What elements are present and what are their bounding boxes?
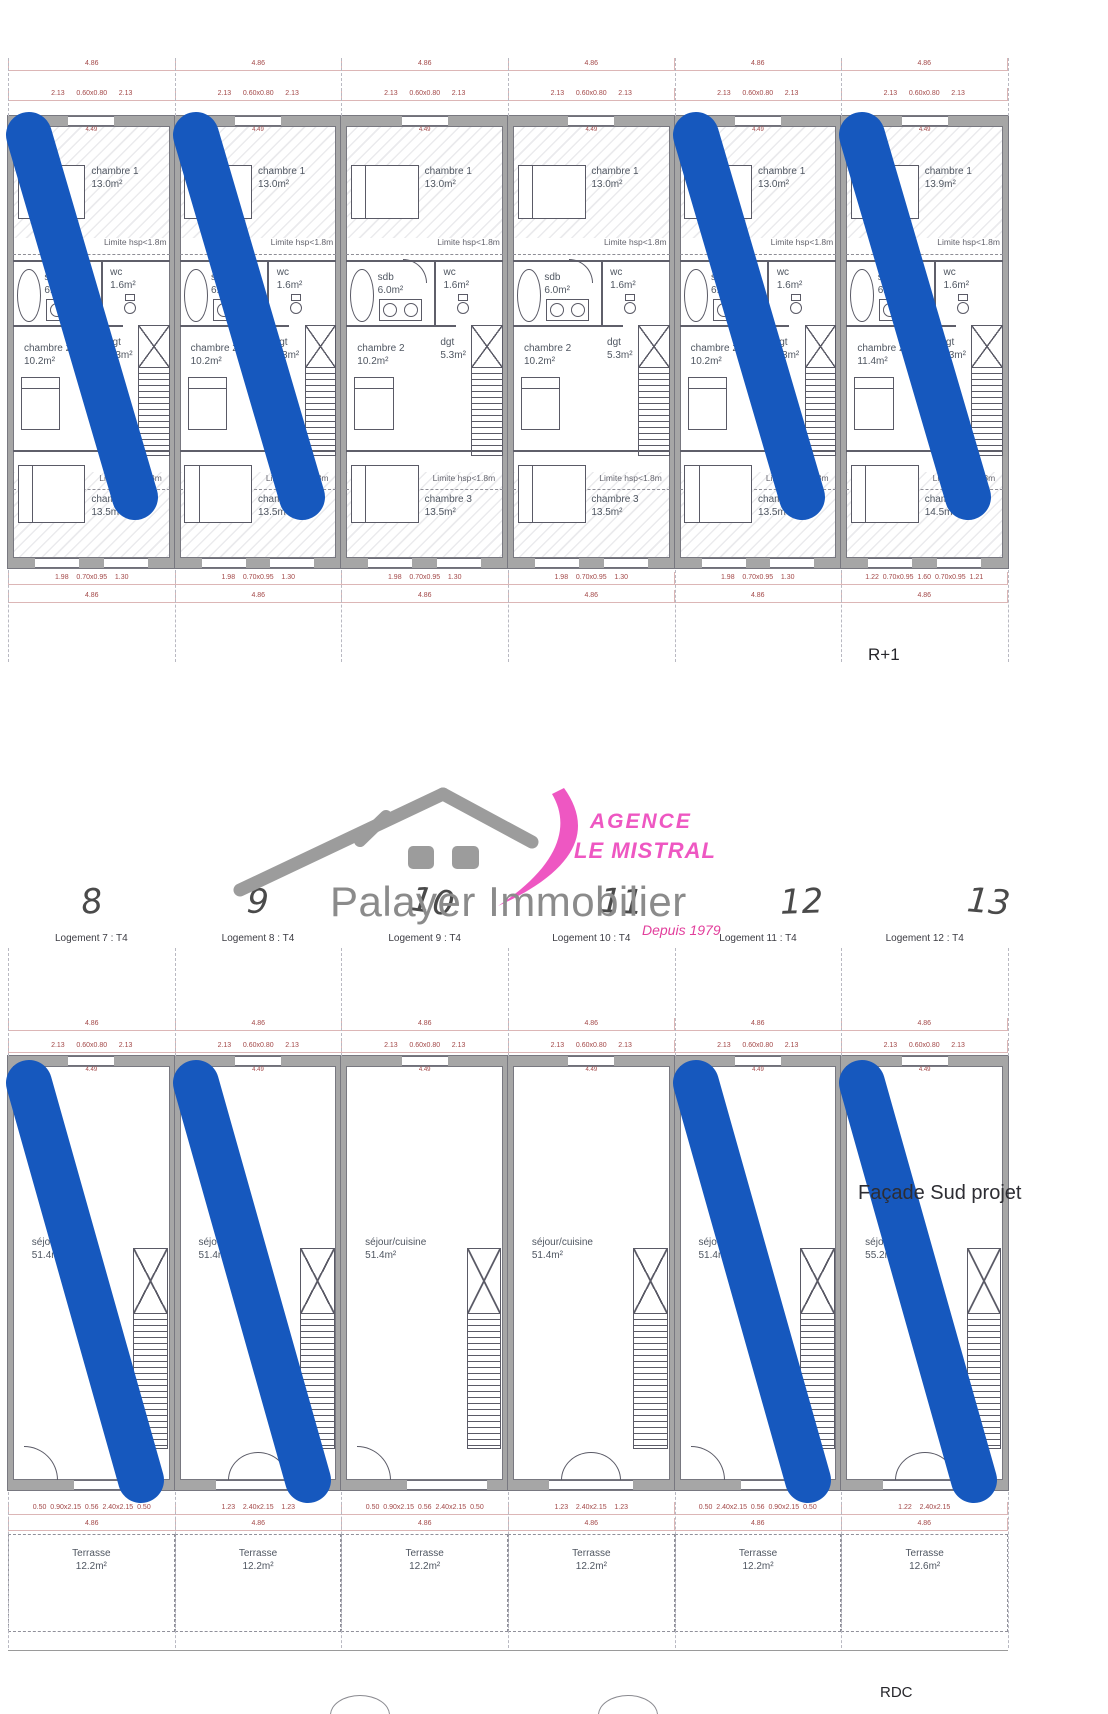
- room-label-wc: wc 1.6m²: [943, 266, 969, 292]
- limite-hsp-label: Limite hsp<1.8m: [271, 237, 334, 247]
- window-opening: [35, 558, 79, 568]
- dim-interior-width: 4.49: [680, 1067, 837, 1073]
- glazed-opening: [549, 1480, 633, 1490]
- dim-interior-width: 4.49: [180, 1067, 337, 1073]
- window-opening: [937, 558, 981, 568]
- interior-wall: [267, 260, 269, 325]
- staircase: [971, 325, 1003, 457]
- logement-label: Logement 7 : T4: [8, 933, 175, 944]
- room-label-chambre1: chambre 1 13.0m²: [758, 165, 805, 191]
- logement-labels-row: Logement 7 : T4 Logement 8 : T4 Logement…: [8, 933, 1008, 944]
- dim-cell: 4.86: [341, 590, 508, 603]
- dim-cell: 2.13 0.60x0.80 2.13: [341, 1040, 508, 1053]
- handwritten-number: 13: [965, 880, 1012, 924]
- dim-cell: 0.50 0.90x2.15 0.56 2.40x2.15 0.50: [341, 1502, 508, 1515]
- limite-hsp-line: [846, 254, 1003, 255]
- limite-hsp-label: Limite hsp<1.8m: [599, 473, 662, 483]
- window-opening: [902, 1056, 948, 1066]
- glazed-opening: [216, 1480, 300, 1490]
- bed-icon: [688, 377, 728, 431]
- staircase: [967, 1248, 1002, 1449]
- bed-icon: [851, 165, 919, 219]
- dim-interior-width: 4.49: [13, 1067, 170, 1073]
- door-arc: [69, 259, 93, 283]
- bed-icon: [188, 377, 228, 431]
- dim-interior-width: 4.49: [513, 127, 670, 133]
- window-opening: [604, 558, 648, 568]
- dim-cell: 1.22 0.70x0.95 1.60 0.70x0.95 1.21: [841, 572, 1009, 585]
- house-roof-icon: [240, 794, 532, 890]
- rdc-unit: 4.49 séjour/cuisine 51.4m²: [675, 1056, 842, 1490]
- limite-hsp-label: Limite hsp<1.8m: [937, 237, 1000, 247]
- logement-label: Logement 8 : T4: [175, 933, 342, 944]
- dim-cell: 4.86: [508, 590, 675, 603]
- room-label-chambre1: chambre 1 13.0m²: [258, 165, 305, 191]
- r1-unit: 4.49 chambre 1 13.9m² Limite hsp<1.8m sd…: [841, 116, 1008, 568]
- window-opening: [402, 116, 448, 126]
- window-opening: [437, 558, 481, 568]
- floor-plan-rdc: 4.49 séjour/cuisine 51.4m² 4.49 séjour/c…: [8, 1056, 1008, 1490]
- window-opening: [235, 116, 281, 126]
- window-opening: [770, 558, 814, 568]
- interior-wall: [346, 260, 503, 262]
- axis-guide-line: [675, 570, 676, 662]
- axis-guide-line: [508, 948, 509, 1056]
- room-label-sdb: sdb 6.0m²: [544, 271, 570, 297]
- floor-label-rdc: RDC: [880, 1684, 913, 1701]
- room-label-dgt: dgt 5.3m²: [940, 336, 966, 362]
- room-label-sejour-cuisine: séjour/cuisine 51.4m²: [532, 1236, 593, 1262]
- axis-guide-line: [175, 570, 176, 662]
- dim-cell: 1.23 2.40x2.15 1.23: [175, 1502, 342, 1515]
- toilet-icon: [956, 294, 970, 311]
- limite-hsp-label: Limite hsp<1.8m: [933, 473, 996, 483]
- bed-icon: [518, 165, 586, 219]
- dim-cell: 4.86: [841, 1518, 1009, 1531]
- terrasse-area: 12.2m²: [176, 1560, 341, 1573]
- interior-wall: [13, 260, 170, 262]
- limite-hsp-label: Limite hsp<1.8m: [99, 473, 162, 483]
- room-label-wc: wc 1.6m²: [277, 266, 303, 292]
- dim-cell: 4.86: [341, 58, 508, 71]
- axis-guide-line: [841, 1492, 842, 1648]
- rdc-unit: 4.49 séjour/cuisine 51.4m²: [8, 1056, 175, 1490]
- dim-cell: 4.86: [674, 58, 841, 71]
- dim-cell: 2.13 0.60x0.80 2.13: [841, 88, 1009, 101]
- room-label-chambre2: chambre 2 10.2m²: [691, 342, 738, 368]
- dim-cell: 1.98 0.70x0.95 1.30: [8, 572, 175, 585]
- room-label-chambre3: chambre 3 13.5m²: [758, 493, 805, 519]
- dim-cell: 4.86: [674, 590, 841, 603]
- dim-cell: 0.50 2.40x2.15 0.56 0.90x2.15 0.50: [674, 1502, 841, 1515]
- logement-label: Logement 12 : T4: [841, 933, 1008, 944]
- dim-interior-width: 4.49: [680, 127, 837, 133]
- interior-wall: [180, 325, 290, 327]
- limite-hsp-line: [513, 254, 670, 255]
- bathtub-icon: [350, 269, 374, 323]
- window-opening: [235, 1056, 281, 1066]
- interior-wall: [846, 260, 1003, 262]
- bed-icon: [18, 165, 86, 219]
- double-sink-icon: [213, 299, 256, 321]
- room-label-wc: wc 1.6m²: [110, 266, 136, 292]
- axis-guide-line: [8, 1492, 9, 1648]
- dim-cell: 4.86: [175, 1518, 342, 1531]
- staircase: [138, 325, 170, 457]
- axis-guide-line: [175, 58, 176, 116]
- room-label-chambre3: chambre 3 13.5m²: [258, 493, 305, 519]
- bed-icon: [354, 377, 394, 431]
- interior-wall: [601, 260, 603, 325]
- rdc-unit: 4.49 séjour/cuisine 51.4m²: [175, 1056, 342, 1490]
- interior-wall: [346, 450, 503, 452]
- door-arc: [736, 259, 760, 283]
- interior-wall: [767, 260, 769, 325]
- limite-hsp-line: [346, 254, 503, 255]
- dim-cell: 1.98 0.70x0.95 1.30: [508, 572, 675, 585]
- room-label-sdb: sdb 6.0m²: [211, 271, 237, 297]
- bed-icon: [18, 465, 86, 523]
- room-label-wc: wc 1.6m²: [610, 266, 636, 292]
- staircase: [300, 1248, 335, 1449]
- terrasse-area: 12.6m²: [842, 1560, 1007, 1573]
- room-label-wc: wc 1.6m²: [443, 266, 469, 292]
- dim-interior-width: 4.49: [513, 1067, 670, 1073]
- entry-door-arc: [691, 1446, 725, 1480]
- interior-wall: [680, 260, 837, 262]
- limite-hsp-line: [180, 254, 337, 255]
- interior-wall: [101, 260, 103, 325]
- window-opening: [702, 558, 746, 568]
- axis-guide-line: [341, 570, 342, 662]
- interior-wall: [513, 260, 670, 262]
- dim-cell: 4.86: [8, 1018, 175, 1031]
- bed-icon: [851, 465, 919, 523]
- glazed-opening: [74, 1480, 154, 1490]
- room-label-chambre3: chambre 3 13.5m²: [425, 493, 472, 519]
- limite-hsp-label: Limite hsp<1.8m: [433, 473, 496, 483]
- r1-unit: 4.49 chambre 1 13.0m² Limite hsp<1.8m sd…: [175, 116, 342, 568]
- axis-guide-line: [8, 58, 9, 116]
- bed-icon: [684, 165, 752, 219]
- facade-note: Façade Sud projet: [858, 1182, 1021, 1205]
- interior-wall: [346, 325, 456, 327]
- axis-guide-line: [841, 570, 842, 662]
- dim-cell: 2.13 0.60x0.80 2.13: [674, 1040, 841, 1053]
- axis-guide-line: [508, 58, 509, 116]
- dim-cell: 4.86: [674, 1518, 841, 1531]
- entry-door-arc: [357, 1446, 391, 1480]
- room-label-dgt: dgt 5.3m²: [107, 336, 133, 362]
- toilet-icon: [289, 294, 303, 311]
- dim-cell: 4.86: [341, 1018, 508, 1031]
- dim-interior-width: 4.49: [180, 127, 337, 133]
- room-label-chambre1: chambre 1 13.0m²: [91, 165, 138, 191]
- window-opening: [568, 1056, 614, 1066]
- terrasse: Terrasse 12.2m²: [508, 1534, 675, 1632]
- bathtub-icon: [17, 269, 41, 323]
- window-opening: [368, 558, 412, 568]
- dim-cell: 4.86: [8, 58, 175, 71]
- dim-cell: 0.50 0.90x2.15 0.56 2.40x2.15 0.50: [8, 1502, 175, 1515]
- interior-wall: [434, 260, 436, 325]
- bed-icon: [184, 165, 252, 219]
- r1-unit: 4.49 chambre 1 13.0m² Limite hsp<1.8m sd…: [8, 116, 175, 568]
- toilet-icon: [456, 294, 470, 311]
- dim-cell: 4.86: [8, 1518, 175, 1531]
- glazed-opening: [407, 1480, 487, 1490]
- dim-interior-width: 4.49: [13, 127, 170, 133]
- window-opening: [568, 116, 614, 126]
- blueprint-page: 4.864.864.864.864.864.86 2.13 0.60x0.80 …: [0, 0, 1108, 1714]
- rdc-unit: 4.49 séjour/cuisine 51.4m²: [508, 1056, 675, 1490]
- interior-wall: [680, 450, 837, 452]
- axis-guide-line: [675, 948, 676, 1056]
- axis-guide-line: [1008, 1492, 1009, 1648]
- glazed-opening: [883, 1480, 967, 1490]
- room-label-chambre2: chambre 2 11.4m²: [857, 342, 904, 368]
- dim-cell: 2.13 0.60x0.80 2.13: [508, 1040, 675, 1053]
- axis-guide-line: [341, 58, 342, 116]
- axis-guide-line: [1008, 570, 1009, 662]
- handwritten-number: 8: [78, 881, 104, 923]
- dim-cell: 2.13 0.60x0.80 2.13: [674, 88, 841, 101]
- room-label-dgt: dgt 5.3m²: [774, 336, 800, 362]
- company-name: Palayer Immobilier: [330, 878, 687, 926]
- bed-icon: [351, 465, 419, 523]
- dim-cell: 2.13 0.60x0.80 2.13: [841, 1040, 1009, 1053]
- interior-wall: [513, 450, 670, 452]
- room-label-sejour-cuisine: séjour/cuisine 51.4m²: [365, 1236, 426, 1262]
- axis-guide-line: [341, 1492, 342, 1648]
- terrasse-area: 12.2m²: [9, 1560, 174, 1573]
- room-label-wc: wc 1.6m²: [777, 266, 803, 292]
- room-label-chambre1: chambre 1 13.9m²: [925, 165, 972, 191]
- bed-icon: [854, 377, 894, 431]
- dim-cell: 4.86: [674, 1018, 841, 1031]
- staircase: [133, 1248, 168, 1449]
- door-arc: [903, 259, 927, 283]
- staircase: [638, 325, 670, 457]
- r1-unit: 4.49 chambre 1 13.0m² Limite hsp<1.8m sd…: [675, 116, 842, 568]
- rdc-unit: 4.49 séjour/cuisine 51.4m²: [341, 1056, 508, 1490]
- door-arc: [598, 1695, 658, 1714]
- dim-interior-width: 4.49: [346, 1067, 503, 1073]
- dim-cell: 2.13 0.60x0.80 2.13: [175, 88, 342, 101]
- door-arc: [330, 1695, 390, 1714]
- staircase: [800, 1248, 835, 1449]
- dim-interior-width: 4.49: [846, 127, 1003, 133]
- axis-guide-line: [841, 948, 842, 1056]
- axis-guide-line: [341, 948, 342, 1056]
- room-label-sdb: sdb 6.0m²: [44, 271, 70, 297]
- interior-wall: [13, 325, 123, 327]
- dim-cell: 4.86: [175, 590, 342, 603]
- dim-cell: 1.23 2.40x2.15 1.23: [508, 1502, 675, 1515]
- dim-cell: 4.86: [841, 590, 1009, 603]
- window-opening: [902, 116, 948, 126]
- floor-plan-r1: 4.49 chambre 1 13.0m² Limite hsp<1.8m sd…: [8, 116, 1008, 568]
- dim-cell: 4.86: [508, 1018, 675, 1031]
- dim-cell: 4.86: [508, 58, 675, 71]
- room-label-chambre2: chambre 2 10.2m²: [524, 342, 571, 368]
- window-opening: [868, 558, 912, 568]
- interior-wall: [513, 325, 623, 327]
- terrasse-label: Terrasse: [509, 1547, 674, 1560]
- dim-cell: 1.98 0.70x0.95 1.30: [175, 572, 342, 585]
- overall-dimension-line: [8, 1650, 1008, 1651]
- r1-unit: 4.49 chambre 1 13.0m² Limite hsp<1.8m sd…: [341, 116, 508, 568]
- logement-label: Logement 9 : T4: [341, 933, 508, 944]
- bed-icon: [518, 465, 586, 523]
- bed-icon: [21, 377, 61, 431]
- room-label-chambre1: chambre 1 13.0m²: [425, 165, 472, 191]
- terrasse: Terrasse 12.2m²: [8, 1534, 175, 1632]
- dim-cell: 4.86: [175, 58, 342, 71]
- agency-name-line2: LE MISTRAL: [574, 838, 716, 864]
- terrasse: Terrasse 12.2m²: [341, 1534, 508, 1632]
- dim-cell: 1.98 0.70x0.95 1.30: [341, 572, 508, 585]
- bed-icon: [684, 465, 752, 523]
- window-opening: [735, 116, 781, 126]
- axis-guide-line: [8, 570, 9, 662]
- dim-cell: 4.86: [841, 1018, 1009, 1031]
- terrasse-area: 12.2m²: [342, 1560, 507, 1573]
- staircase: [305, 325, 337, 457]
- terrasse-label: Terrasse: [342, 1547, 507, 1560]
- interior-wall: [846, 450, 1003, 452]
- company-tagline: Depuis 1979: [642, 922, 721, 938]
- interior-wall: [934, 260, 936, 325]
- room-label-chambre3: chambre 3 13.5m²: [591, 493, 638, 519]
- dim-cell: 2.13 0.60x0.80 2.13: [341, 88, 508, 101]
- room-label-dgt: dgt 5.3m²: [274, 336, 300, 362]
- bathtub-icon: [184, 269, 208, 323]
- bathtub-icon: [684, 269, 708, 323]
- interior-wall: [846, 325, 956, 327]
- room-label-chambre3: chambre 3 13.5m²: [91, 493, 138, 519]
- axis-guide-line: [1008, 58, 1009, 116]
- double-sink-icon: [879, 299, 922, 321]
- door-arc: [569, 259, 593, 283]
- room-label-chambre3: chambre 3 14.5m²: [925, 493, 972, 519]
- terrasse: Terrasse 12.2m²: [675, 1534, 842, 1632]
- window-opening: [270, 558, 314, 568]
- terrasse: Terrasse 12.6m²: [841, 1534, 1008, 1632]
- terrasse-label: Terrasse: [842, 1547, 1007, 1560]
- room-label-chambre2: chambre 2 10.2m²: [191, 342, 238, 368]
- double-sink-icon: [379, 299, 422, 321]
- door-arc: [403, 259, 427, 283]
- limite-hsp-label: Limite hsp<1.8m: [604, 237, 667, 247]
- dim-cell: 4.86: [8, 590, 175, 603]
- window-opening: [402, 1056, 448, 1066]
- room-label-chambre2: chambre 2 10.2m²: [357, 342, 404, 368]
- room-label-sdb: sdb 6.0m²: [711, 271, 737, 297]
- bathtub-icon: [517, 269, 541, 323]
- limite-hsp-label: Limite hsp<1.8m: [266, 473, 329, 483]
- toilet-icon: [789, 294, 803, 311]
- terrasse-area: 12.2m²: [676, 1560, 841, 1573]
- axis-guide-line: [675, 1492, 676, 1648]
- floor-label-r1: R+1: [868, 645, 900, 665]
- double-sink-icon: [46, 299, 89, 321]
- room-label-chambre1: chambre 1 13.0m²: [591, 165, 638, 191]
- window-opening: [104, 558, 148, 568]
- room-label-sejour-cuisine: séjour/cuisine 51.4m²: [698, 1236, 759, 1262]
- toilet-icon: [623, 294, 637, 311]
- limite-hsp-line: [680, 254, 837, 255]
- room-label-sejour-cuisine: séjour/cuisine 51.4m²: [198, 1236, 259, 1262]
- r1-unit: 4.49 chambre 1 13.0m² Limite hsp<1.8m sd…: [508, 116, 675, 568]
- bed-icon: [184, 465, 252, 523]
- entry-door-arc: [24, 1446, 58, 1480]
- french-doors-arc: [895, 1452, 955, 1480]
- room-label-sdb: sdb 6.0m²: [378, 271, 404, 297]
- interior-wall: [13, 450, 170, 452]
- handwritten-number: 12: [780, 881, 825, 922]
- window-opening: [202, 558, 246, 568]
- room-label-sejour-cuisine: séjour/cuisine 55.2m²: [865, 1236, 926, 1262]
- terrasse-label: Terrasse: [176, 1547, 341, 1560]
- staircase: [805, 325, 837, 457]
- dim-interior-width: 4.49: [846, 1067, 1003, 1073]
- window-opening: [735, 1056, 781, 1066]
- bed-icon: [351, 165, 419, 219]
- dim-cell: 4.86: [841, 58, 1009, 71]
- axis-guide-line: [675, 58, 676, 116]
- axis-guide-line: [1008, 948, 1009, 1056]
- dim-cell: 4.86: [341, 1518, 508, 1531]
- room-label-chambre2: chambre 2 10.2m²: [24, 342, 71, 368]
- axis-guide-line: [508, 570, 509, 662]
- dim-cell: 1.98 0.70x0.95 1.30: [674, 572, 841, 585]
- double-sink-icon: [713, 299, 756, 321]
- room-label-dgt: dgt 5.3m²: [607, 336, 633, 362]
- axis-guide-line: [175, 1492, 176, 1648]
- dim-cell: 1.22 2.40x2.15: [841, 1502, 1009, 1515]
- dim-cell: 2.13 0.60x0.80 2.13: [508, 88, 675, 101]
- limite-hsp-label: Limite hsp<1.8m: [766, 473, 829, 483]
- dim-cell: 2.13 0.60x0.80 2.13: [8, 88, 175, 101]
- axis-guide-line: [175, 948, 176, 1056]
- axis-guide-line: [8, 948, 9, 1056]
- window-opening: [68, 1056, 114, 1066]
- window-opening: [68, 116, 114, 126]
- toilet-icon: [123, 294, 137, 311]
- interior-wall: [180, 450, 337, 452]
- terrasse: Terrasse 12.2m²: [175, 1534, 342, 1632]
- french-doors-arc: [228, 1452, 288, 1480]
- bathtub-icon: [850, 269, 874, 323]
- dim-cell: 4.86: [175, 1018, 342, 1031]
- window-opening: [535, 558, 579, 568]
- dim-cell: 2.13 0.60x0.80 2.13: [8, 1040, 175, 1053]
- staircase: [471, 325, 503, 457]
- dim-interior-width: 4.49: [346, 127, 503, 133]
- limite-hsp-label: Limite hsp<1.8m: [437, 237, 500, 247]
- dim-cell: 4.86: [508, 1518, 675, 1531]
- terrasse-area: 12.2m²: [509, 1560, 674, 1573]
- rdc-unit: 4.49 séjour/cuisine 55.2m²: [841, 1056, 1008, 1490]
- bed-icon: [521, 377, 561, 431]
- staircase: [633, 1248, 668, 1449]
- limite-hsp-line: [13, 254, 170, 255]
- limite-hsp-label: Limite hsp<1.8m: [104, 237, 167, 247]
- dim-cell: 2.13 0.60x0.80 2.13: [175, 1040, 342, 1053]
- interior-wall: [180, 260, 337, 262]
- terrasse-label: Terrasse: [9, 1547, 174, 1560]
